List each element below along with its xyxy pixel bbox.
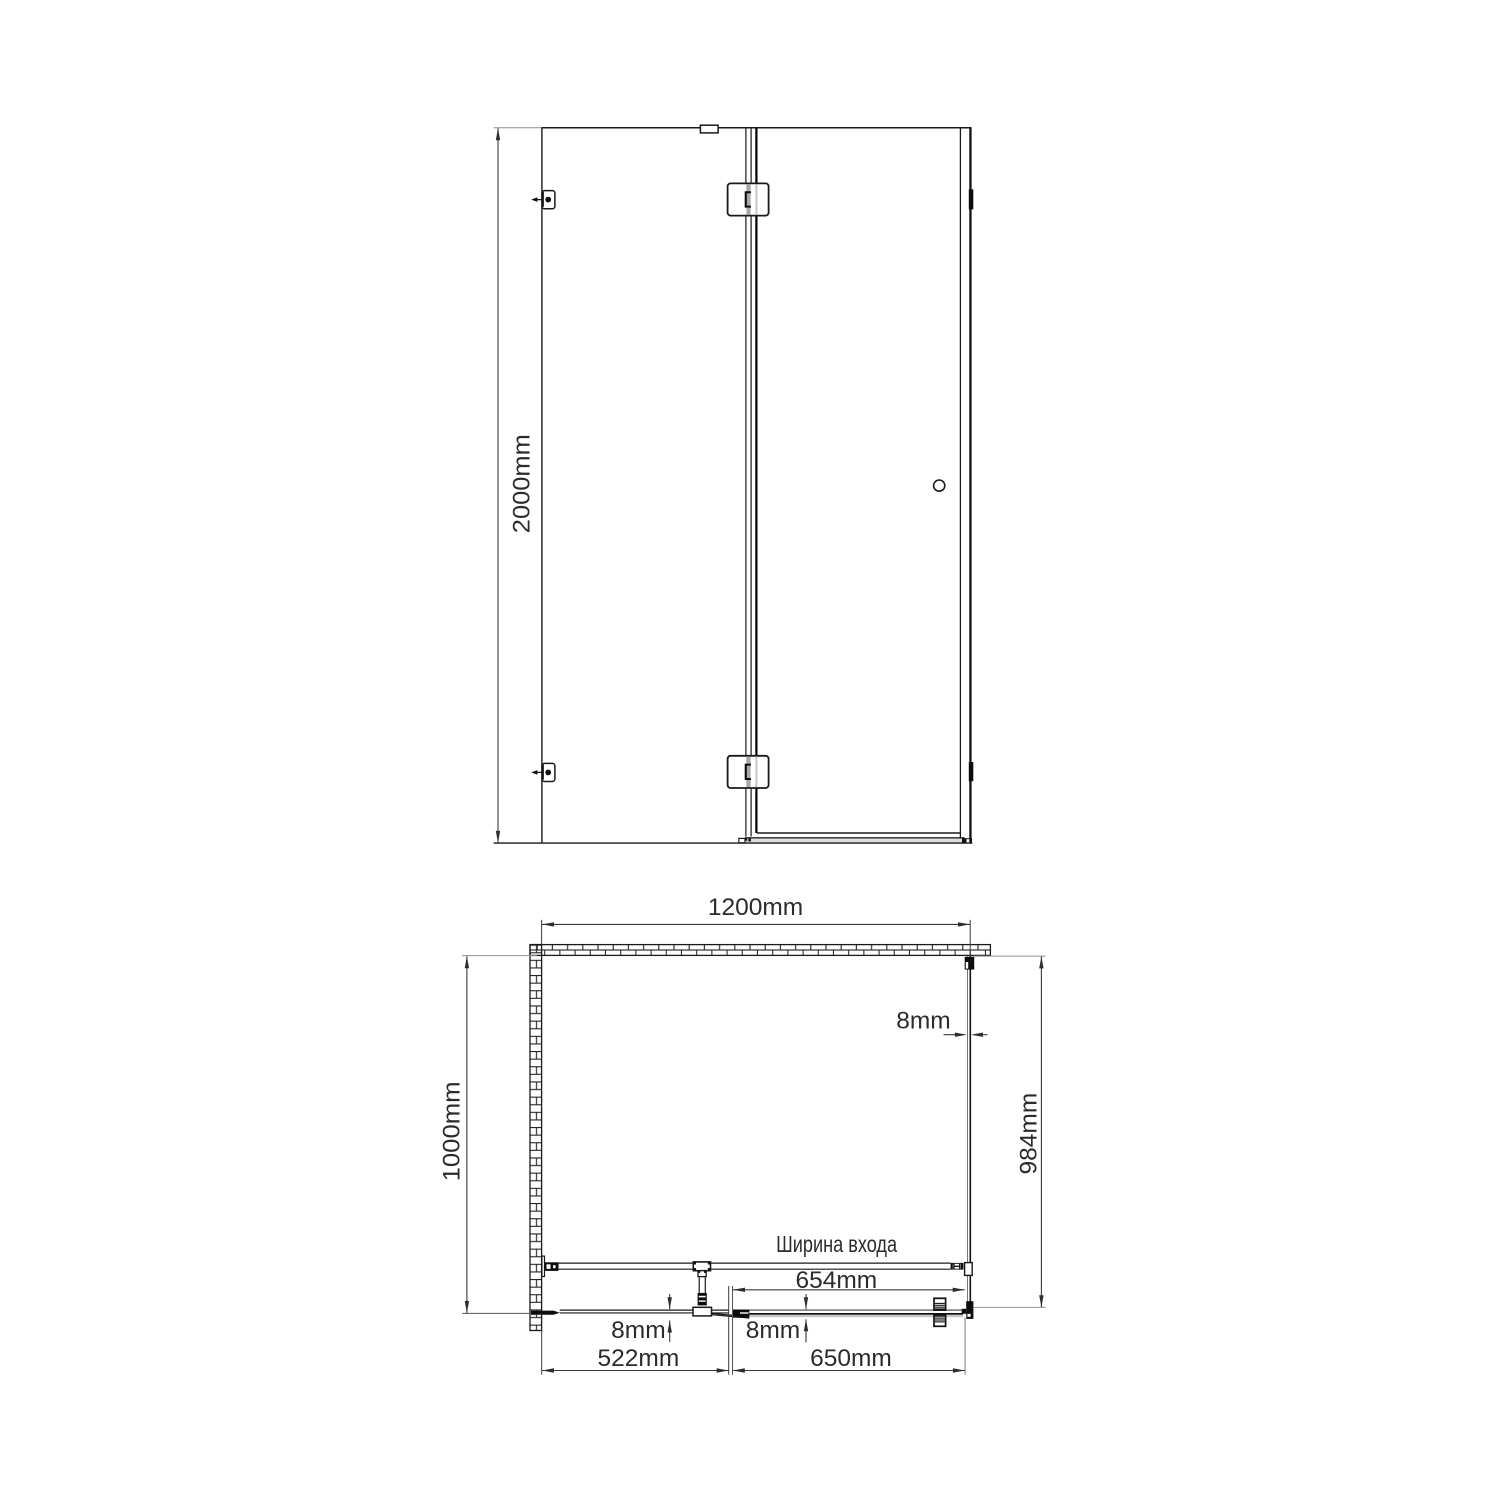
svg-text:8mm: 8mm (896, 1007, 950, 1034)
svg-text:1200mm: 1200mm (708, 894, 803, 921)
svg-text:Ширина входа: Ширина входа (776, 1231, 897, 1257)
svg-text:8mm: 8mm (611, 1317, 665, 1344)
svg-text:8mm: 8mm (746, 1317, 800, 1344)
svg-text:1000mm: 1000mm (438, 1081, 465, 1181)
svg-text:984mm: 984mm (1015, 1093, 1042, 1175)
svg-text:2000mm: 2000mm (509, 434, 536, 533)
svg-text:650mm: 650mm (810, 1345, 892, 1372)
svg-text:522mm: 522mm (598, 1345, 680, 1372)
